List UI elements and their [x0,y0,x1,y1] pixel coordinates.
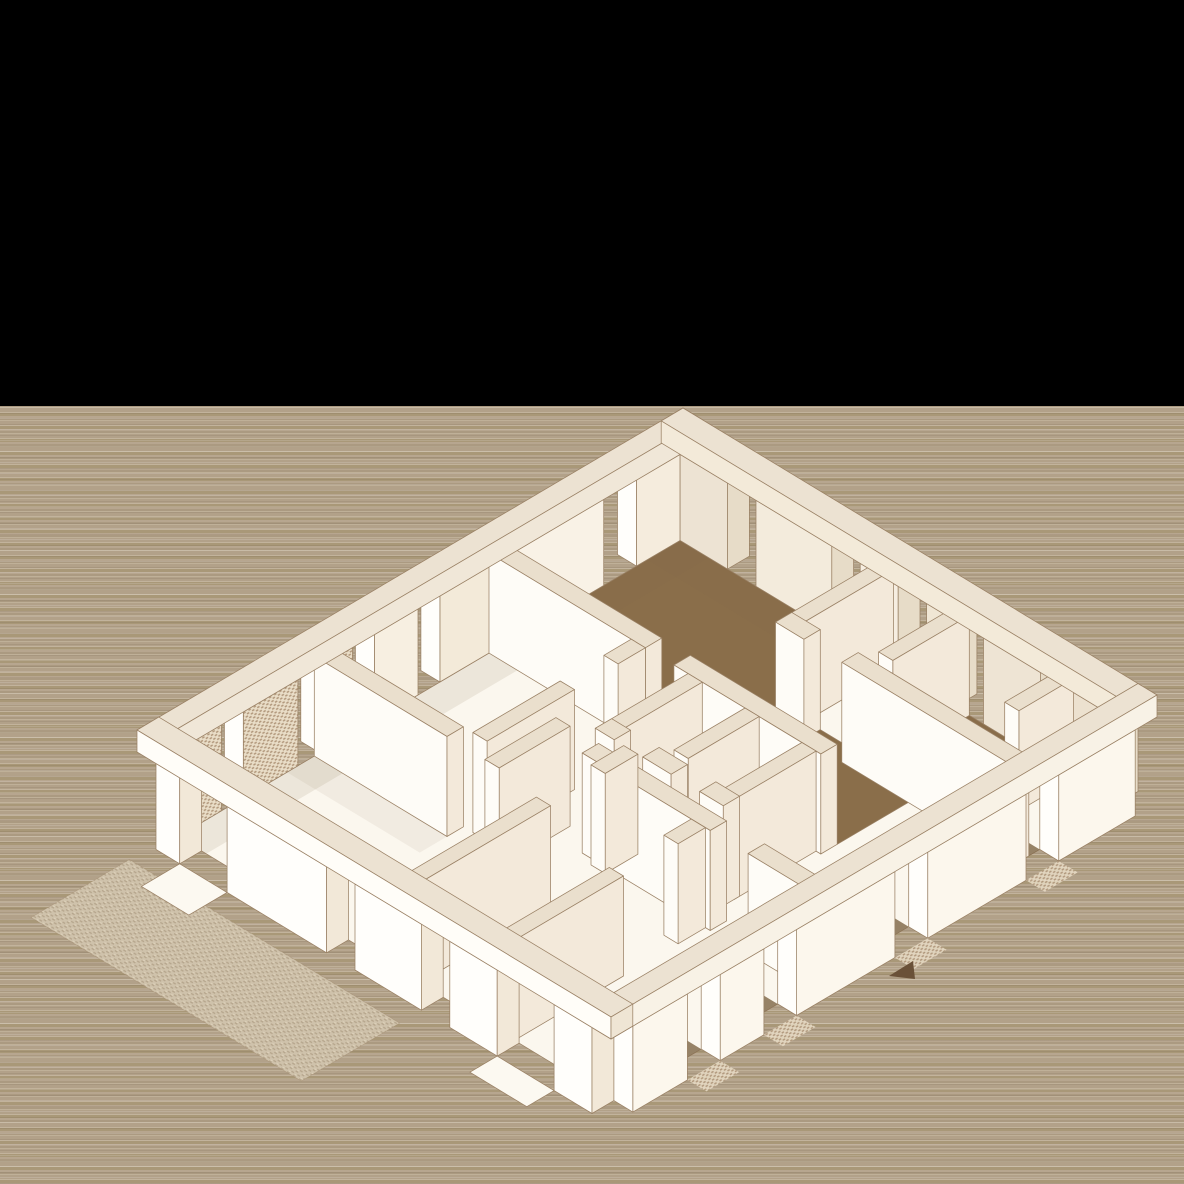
scene [0,0,1184,1184]
axonometric-svg [0,0,1184,1184]
direction-marker [889,961,915,979]
